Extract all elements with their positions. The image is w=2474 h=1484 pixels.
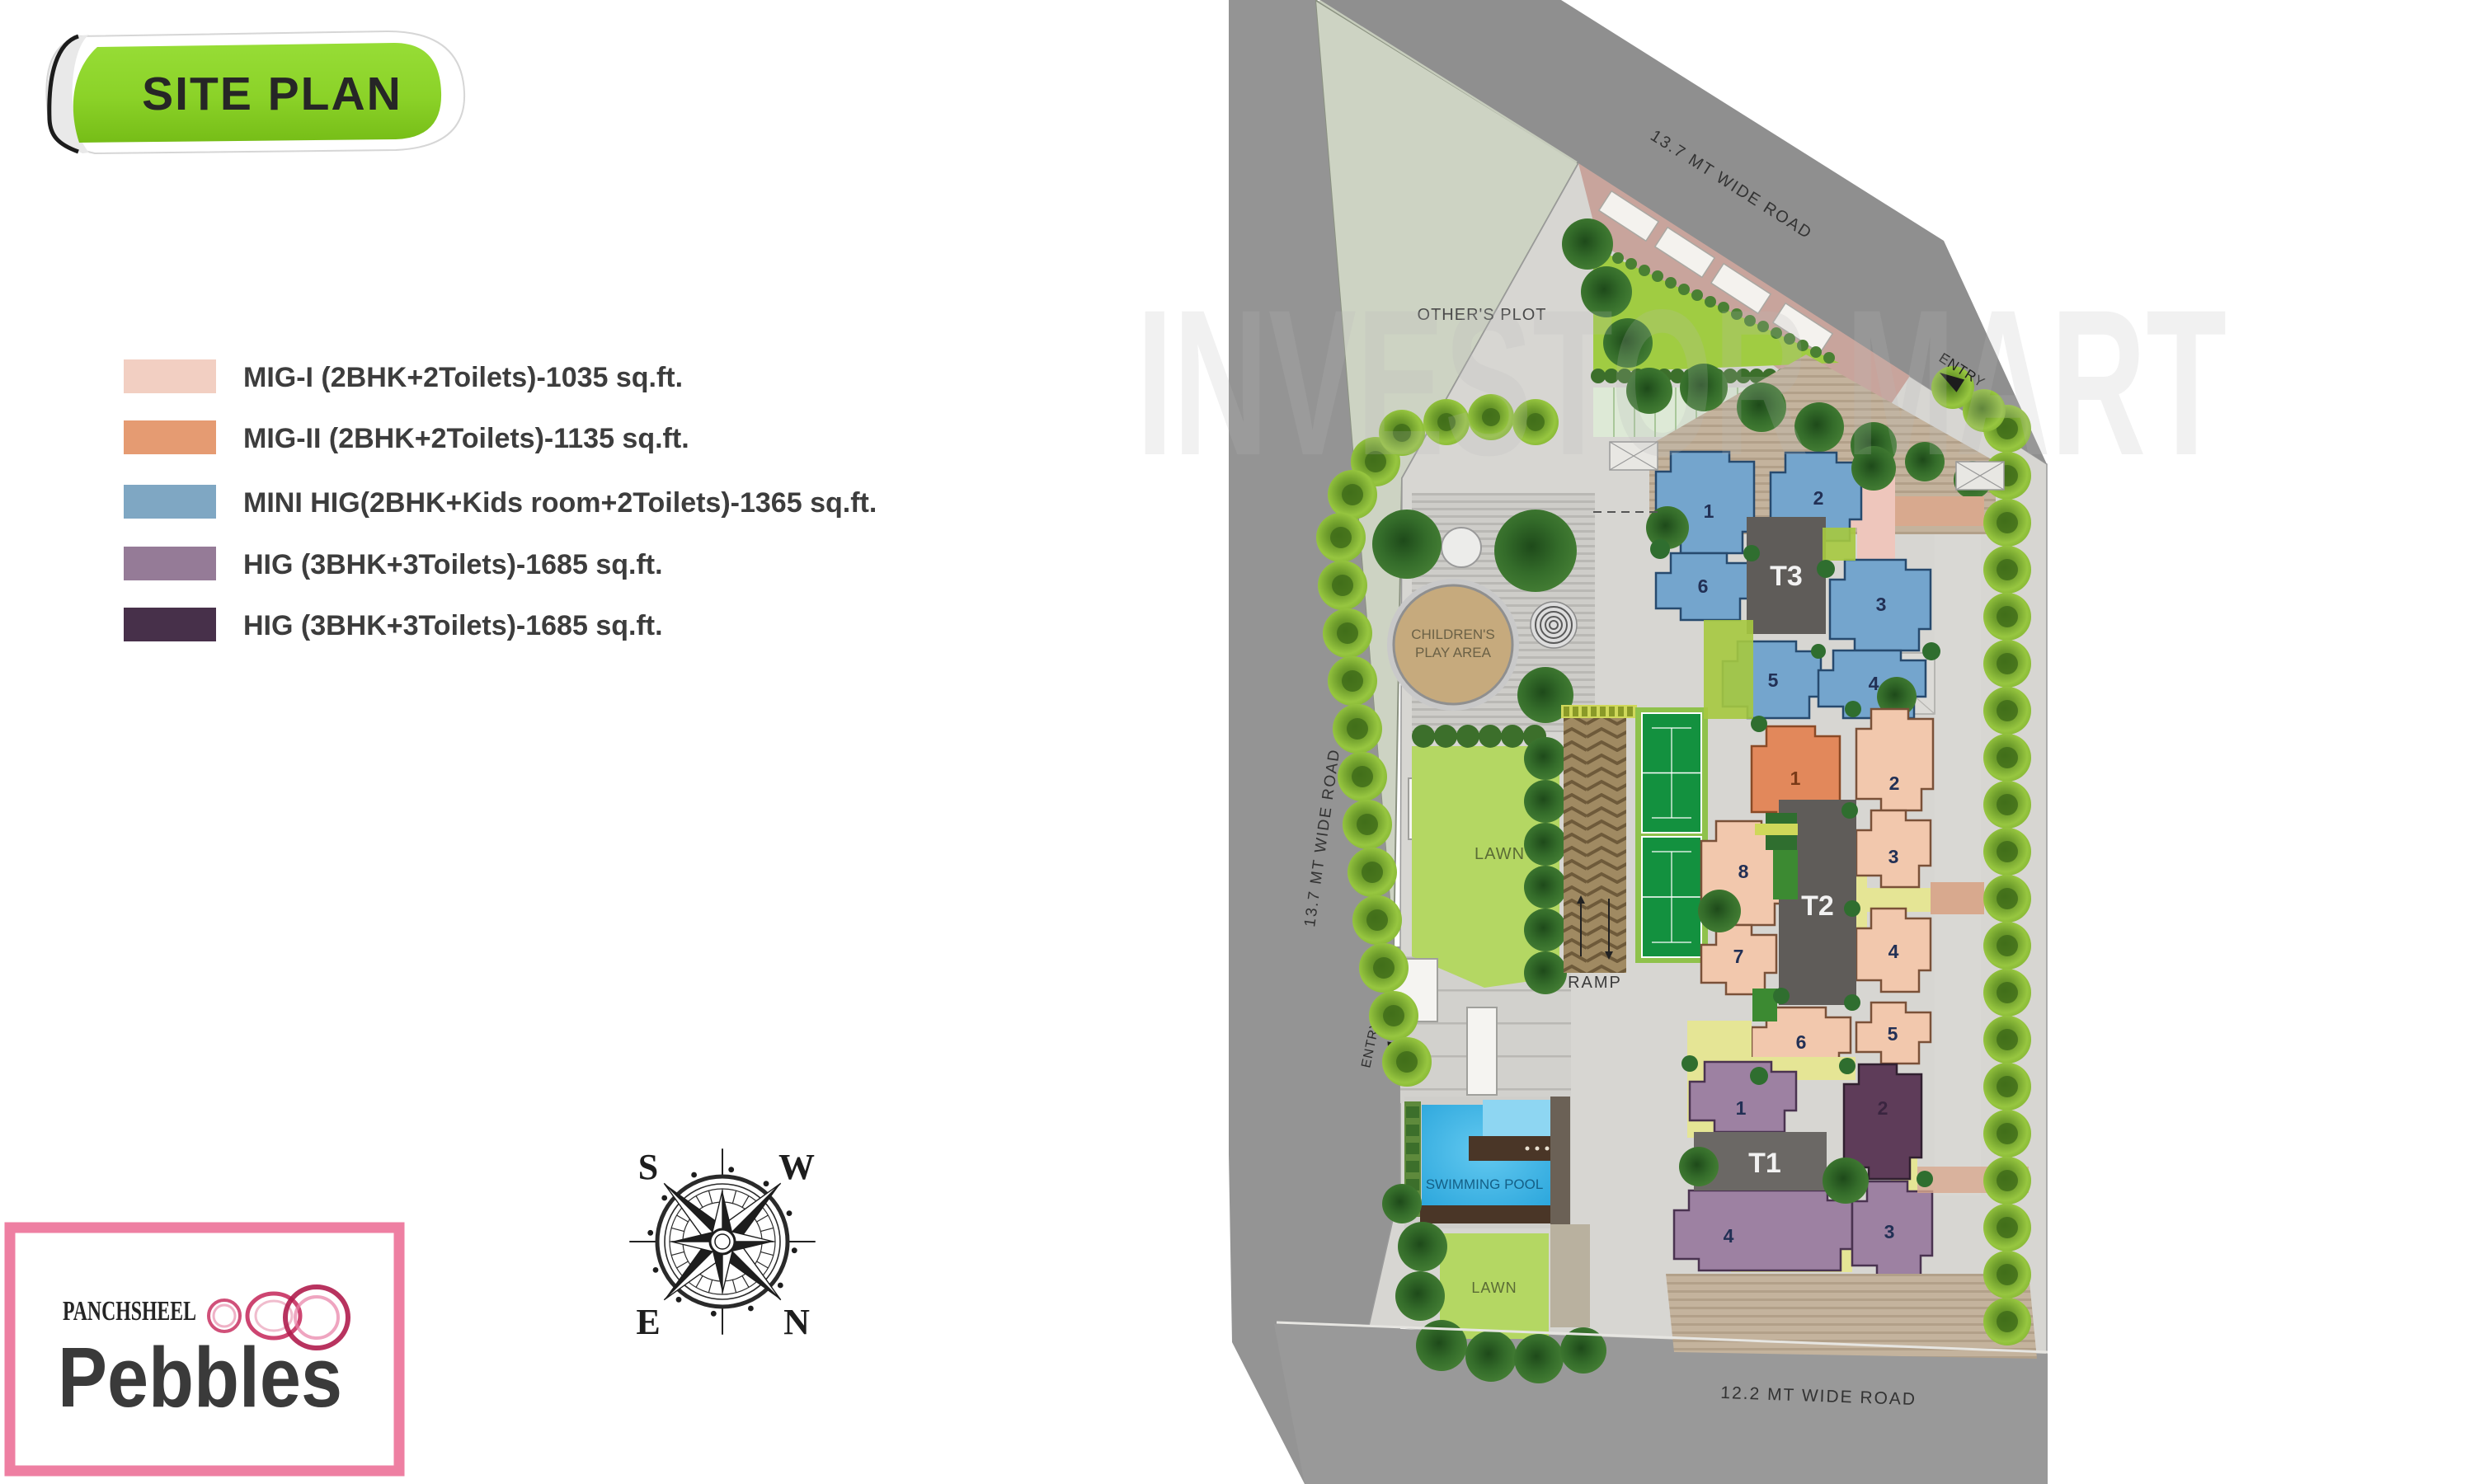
svg-text:1: 1 — [1736, 1097, 1747, 1119]
svg-text:PANCHSHEEL: PANCHSHEEL — [63, 1296, 196, 1327]
svg-text:6: 6 — [1796, 1031, 1807, 1053]
svg-text:S: S — [638, 1147, 658, 1187]
svg-text:CHILDREN'S: CHILDREN'S — [1411, 627, 1495, 642]
svg-text:8: 8 — [1738, 861, 1749, 882]
svg-text:7: 7 — [1733, 946, 1744, 967]
svg-text:MIG-I (2BHK+2Toilets)-1035 sq.: MIG-I (2BHK+2Toilets)-1035 sq.ft. — [243, 362, 683, 393]
svg-text:3: 3 — [1884, 1221, 1895, 1242]
svg-text:LAWN: LAWN — [1471, 1280, 1517, 1296]
svg-text:4: 4 — [1724, 1225, 1734, 1247]
svg-text:W: W — [778, 1147, 815, 1187]
svg-text:MINI HIG(2BHK+Kids room+2Toile: MINI HIG(2BHK+Kids room+2Toilets)-1365 s… — [243, 487, 877, 519]
svg-text:T2: T2 — [1801, 890, 1834, 922]
svg-text:N: N — [783, 1302, 810, 1342]
svg-text:3: 3 — [1888, 846, 1899, 867]
svg-text:5: 5 — [1888, 1023, 1898, 1045]
svg-text:1: 1 — [1790, 768, 1801, 789]
svg-text:MIG-II (2BHK+2Toilets)-1135 sq: MIG-II (2BHK+2Toilets)-1135 sq.ft. — [243, 423, 689, 454]
svg-text:4: 4 — [1888, 941, 1899, 962]
svg-text:INVESTOR MART: INVESTOR MART — [1136, 267, 2227, 499]
svg-text:SITE PLAN: SITE PLAN — [142, 68, 402, 120]
svg-text:1: 1 — [1704, 500, 1714, 522]
svg-text:T1: T1 — [1748, 1148, 1781, 1179]
svg-text:PLAY AREA: PLAY AREA — [1415, 645, 1492, 660]
svg-text:5: 5 — [1768, 669, 1779, 691]
svg-text:RAMP: RAMP — [1568, 974, 1622, 992]
svg-text:6: 6 — [1698, 575, 1709, 597]
svg-text:Pebbles: Pebbles — [58, 1330, 342, 1425]
svg-text:LAWN: LAWN — [1475, 845, 1525, 863]
svg-text:2: 2 — [1889, 773, 1900, 794]
svg-text:SWIMMING POOL: SWIMMING POOL — [1426, 1176, 1544, 1192]
svg-text:E: E — [636, 1302, 660, 1342]
svg-text:T3: T3 — [1770, 561, 1803, 592]
svg-text:4: 4 — [1869, 673, 1879, 694]
svg-text:3: 3 — [1876, 594, 1887, 615]
svg-text:HIG (3BHK+3Toilets)-1685 sq.ft: HIG (3BHK+3Toilets)-1685 sq.ft. — [243, 549, 663, 580]
svg-text:HIG (3BHK+3Toilets)-1685 sq.ft: HIG (3BHK+3Toilets)-1685 sq.ft. — [243, 610, 663, 641]
svg-text:2: 2 — [1878, 1097, 1888, 1119]
